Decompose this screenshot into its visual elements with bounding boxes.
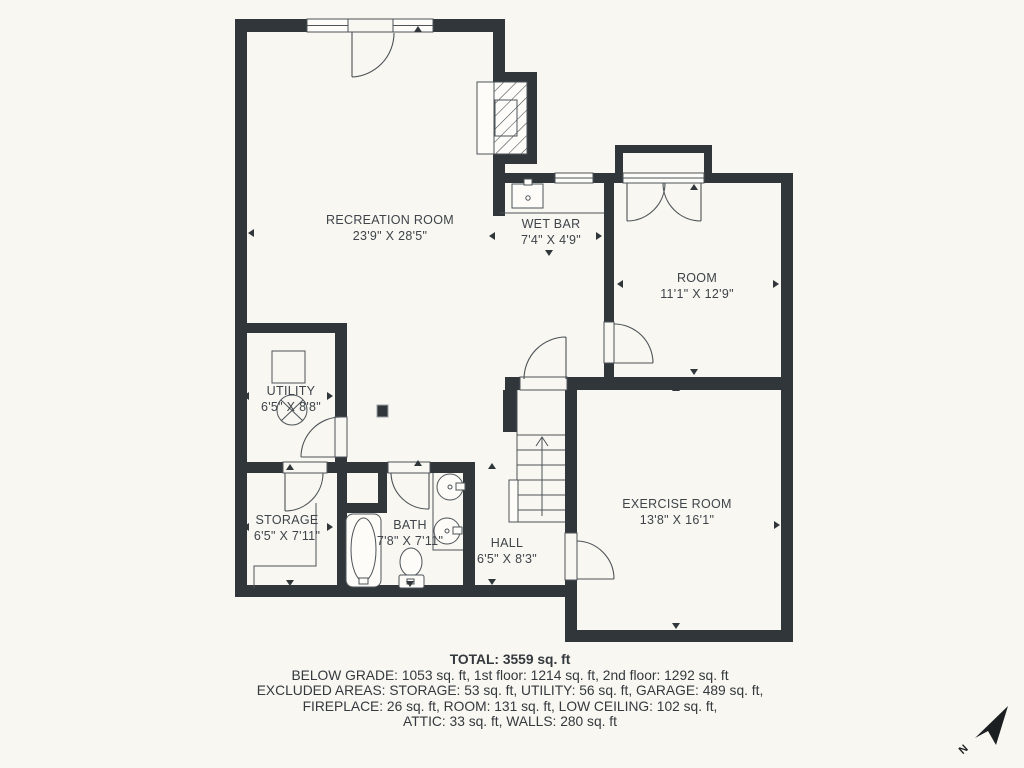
stair-rail — [509, 480, 518, 522]
dimension-tick — [690, 369, 698, 375]
room-door-opening — [604, 322, 614, 363]
dimension-tick — [672, 623, 680, 629]
summary-line: FIREPLACE: 26 sq. ft, ROOM: 131 sq. ft, … — [257, 699, 764, 715]
fireplace-hearth — [477, 82, 494, 154]
rec-room-door-opening — [348, 19, 393, 32]
window — [307, 19, 348, 32]
dimension-tick — [617, 280, 623, 288]
room-label-bath: BATH 7'8" X 7'11" — [377, 517, 443, 549]
dimension-tick — [545, 250, 553, 256]
dimension-tick — [243, 392, 249, 400]
room-label-utility: UTILITY 6'5" X 8'8" — [261, 383, 321, 415]
dimension-tick — [773, 280, 779, 288]
room-dimensions: 6'5" X 7'11" — [254, 528, 320, 544]
utility-door-opening — [335, 417, 347, 457]
window-sill — [623, 173, 704, 183]
dimension-tick — [406, 581, 414, 587]
wet-bar-fixtures — [500, 179, 604, 213]
room-label-storage: STORAGE 6'5" X 7'11" — [254, 512, 320, 544]
window — [555, 173, 593, 183]
north-arrow-icon — [975, 706, 1008, 745]
dimension-tick — [414, 26, 422, 32]
room-label-room: ROOM 11'1" X 12'9" — [660, 270, 734, 302]
bath-sink-1-faucet — [456, 483, 465, 490]
dimension-tick — [672, 385, 680, 391]
dimension-tick — [464, 541, 470, 549]
column-post — [377, 405, 388, 417]
room-name: EXERCISE ROOM — [622, 496, 731, 512]
dimension-tick — [327, 523, 333, 531]
dimension-tick — [327, 392, 333, 400]
summary-line: ATTIC: 33 sq. ft, WALLS: 280 sq. ft — [257, 714, 764, 730]
room-dimensions: 7'8" X 7'11" — [377, 533, 443, 549]
total-area: TOTAL: 3559 sq. ft — [257, 652, 764, 668]
wet-bar-faucet — [524, 179, 532, 185]
bath-door-opening — [388, 462, 430, 473]
room-dimensions: 11'1" X 12'9" — [660, 286, 734, 302]
stairs-up — [509, 390, 565, 522]
room-name: WET BAR — [521, 216, 581, 232]
summary-line: BELOW GRADE: 1053 sq. ft, 1st floor: 121… — [257, 668, 764, 684]
dimension-tick — [286, 327, 294, 333]
dimension-tick — [596, 232, 602, 240]
room-name: UTILITY — [261, 383, 321, 399]
room-name: STORAGE — [254, 512, 320, 528]
dimension-tick — [774, 521, 780, 529]
dimension-tick — [243, 523, 249, 531]
bathtub-faucet — [359, 578, 368, 584]
exercise-door — [577, 541, 614, 579]
north-label: N — [957, 743, 971, 757]
window — [393, 19, 433, 32]
room-dimensions: 6'5" X 8'3" — [477, 551, 537, 567]
stairs-door-opening — [520, 377, 567, 390]
rec-room-door — [352, 32, 394, 77]
toilet-bowl — [400, 548, 422, 576]
bath-sink-2-faucet — [453, 527, 462, 534]
room-label-exercise-room: EXERCISE ROOM 13'8" X 16'1" — [622, 496, 731, 528]
water-heater — [272, 351, 305, 383]
floor-plan-page: N RECREATION ROOM 23'9" X 28'5" WET BAR … — [0, 0, 1024, 768]
dimension-tick — [414, 460, 422, 466]
summary-line: EXCLUDED AREAS: STORAGE: 53 sq. ft, UTIL… — [257, 683, 764, 699]
dimension-tick — [488, 579, 496, 585]
room-name: RECREATION ROOM — [326, 212, 454, 228]
dimension-tick — [489, 232, 495, 240]
room-name: ROOM — [660, 270, 734, 286]
room-label-hall: HALL 6'5" X 8'3" — [477, 535, 537, 567]
room-name: BATH — [377, 517, 443, 533]
room-door — [614, 324, 653, 363]
room-dimensions: 13'8" X 16'1" — [622, 512, 731, 528]
room-label-recreation-room: RECREATION ROOM 23'9" X 28'5" — [326, 212, 454, 244]
storage-door — [285, 473, 323, 511]
fireplace-firebox — [494, 82, 527, 154]
dimension-tick — [286, 580, 294, 586]
room-dimensions: 23'9" X 28'5" — [326, 228, 454, 244]
dimension-tick — [248, 229, 254, 237]
room-dimensions: 6'5" X 8'8" — [261, 399, 321, 415]
fireplace — [477, 82, 527, 154]
dimension-tick — [488, 463, 496, 469]
french-door-left — [627, 183, 665, 221]
stairs-up-arrow — [536, 437, 548, 516]
bath-door — [391, 473, 429, 509]
stairs-landing-door — [524, 337, 566, 379]
north-arrow: N — [957, 706, 1008, 757]
dimension-tick — [286, 464, 294, 470]
dimension-tick — [690, 184, 698, 190]
exercise-door-opening — [565, 533, 577, 580]
room-label-wet-bar: WET BAR 7'4" X 4'9" — [521, 216, 581, 248]
area-summary: TOTAL: 3559 sq. ft BELOW GRADE: 1053 sq.… — [257, 652, 764, 730]
room-dimensions: 7'4" X 4'9" — [521, 232, 581, 248]
room-name: HALL — [477, 535, 537, 551]
